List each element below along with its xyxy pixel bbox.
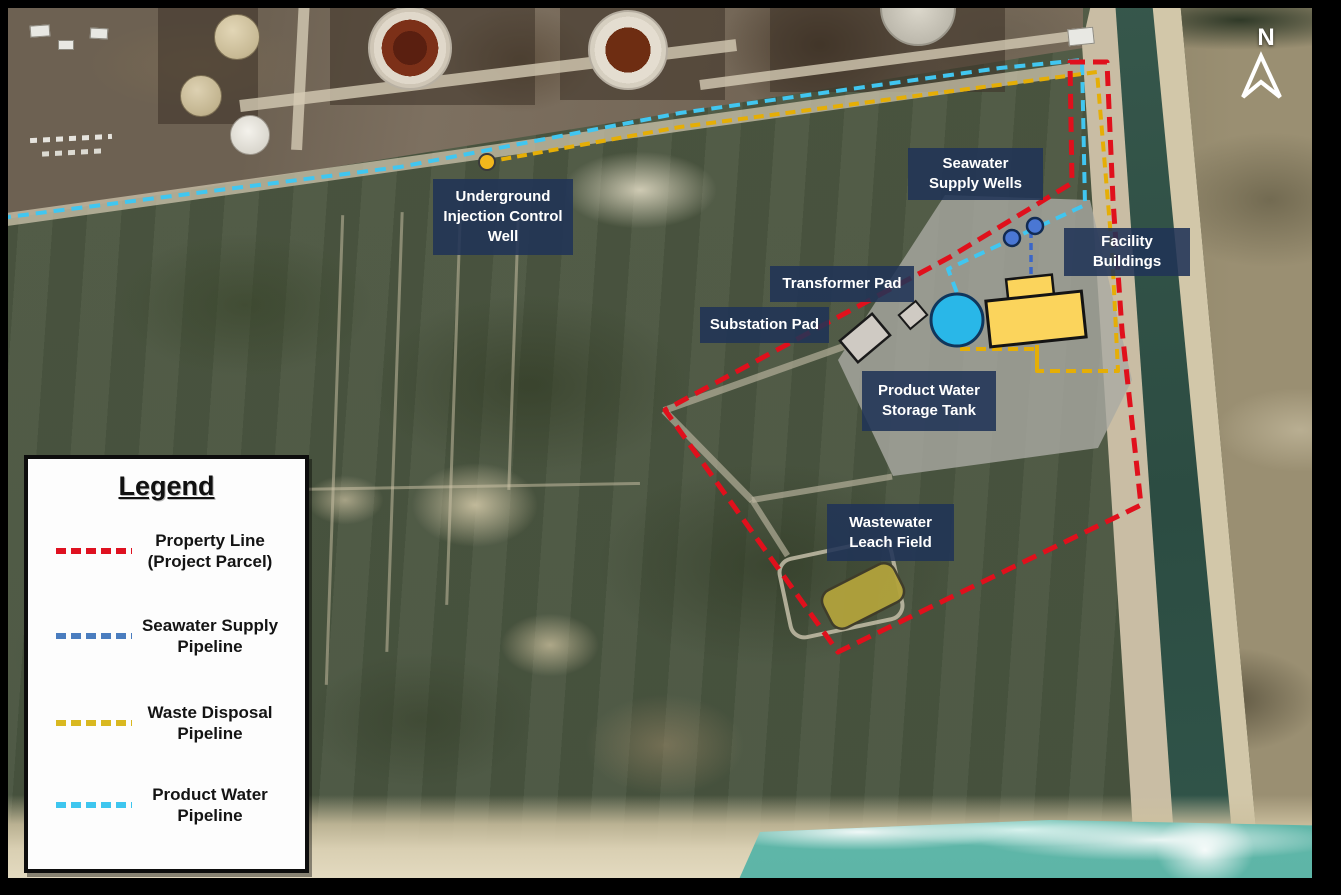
north-arrow: N: [1238, 26, 1294, 112]
transformer-pad-shape: [899, 301, 927, 329]
product-water-storage-tank-shape: [931, 294, 983, 346]
seawater-well-marker: [1004, 230, 1020, 246]
legend-entry-label: Property Line (Project Parcel): [123, 530, 297, 573]
legend-entry-label: Product Water Pipeline: [123, 784, 297, 827]
site-map: Underground Injection Control Well Seawa…: [0, 0, 1341, 895]
label-wastewater-leach-field: Wastewater Leach Field: [827, 504, 954, 561]
frame-bottom: [0, 878, 1341, 895]
label-underground-injection-control-well: Underground Injection Control Well: [433, 179, 573, 255]
property-line-swatch: [56, 548, 132, 554]
seawater-pipeline-swatch: [56, 633, 132, 639]
north-arrow-icon: [1238, 50, 1294, 106]
legend-entry-label: Waste Disposal Pipeline: [123, 702, 297, 745]
seawater-well-marker: [1027, 218, 1043, 234]
frame-right: [1312, 0, 1341, 895]
north-label: N: [1238, 26, 1294, 50]
property-line: [665, 62, 1141, 652]
frame-top: [0, 0, 1341, 8]
waste-pipeline-swatch: [56, 720, 132, 726]
legend: Legend Property Line (Project Parcel) Se…: [24, 455, 309, 873]
product-pipeline-swatch: [56, 802, 132, 808]
frame-left: [0, 0, 8, 895]
substation-pad-shape: [840, 314, 890, 362]
legend-row-product-pipeline: Product Water Pipeline: [28, 777, 305, 833]
legend-title: Legend: [28, 471, 305, 502]
legend-entry-label: Seawater Supply Pipeline: [123, 615, 297, 658]
label-transformer-pad: Transformer Pad: [770, 266, 914, 302]
facility-building-large-shape: [986, 291, 1086, 347]
legend-row-seawater-pipeline: Seawater Supply Pipeline: [28, 608, 305, 664]
label-substation-pad: Substation Pad: [700, 307, 829, 343]
label-facility-buildings: Facility Buildings: [1064, 228, 1190, 276]
legend-row-waste-pipeline: Waste Disposal Pipeline: [28, 695, 305, 751]
label-seawater-supply-wells: Seawater Supply Wells: [908, 148, 1043, 200]
injection-well-marker: [479, 154, 495, 170]
legend-row-property-line: Property Line (Project Parcel): [28, 523, 305, 579]
wastewater-leach-field-shape: [818, 559, 908, 633]
label-product-water-storage-tank: Product Water Storage Tank: [862, 371, 996, 431]
